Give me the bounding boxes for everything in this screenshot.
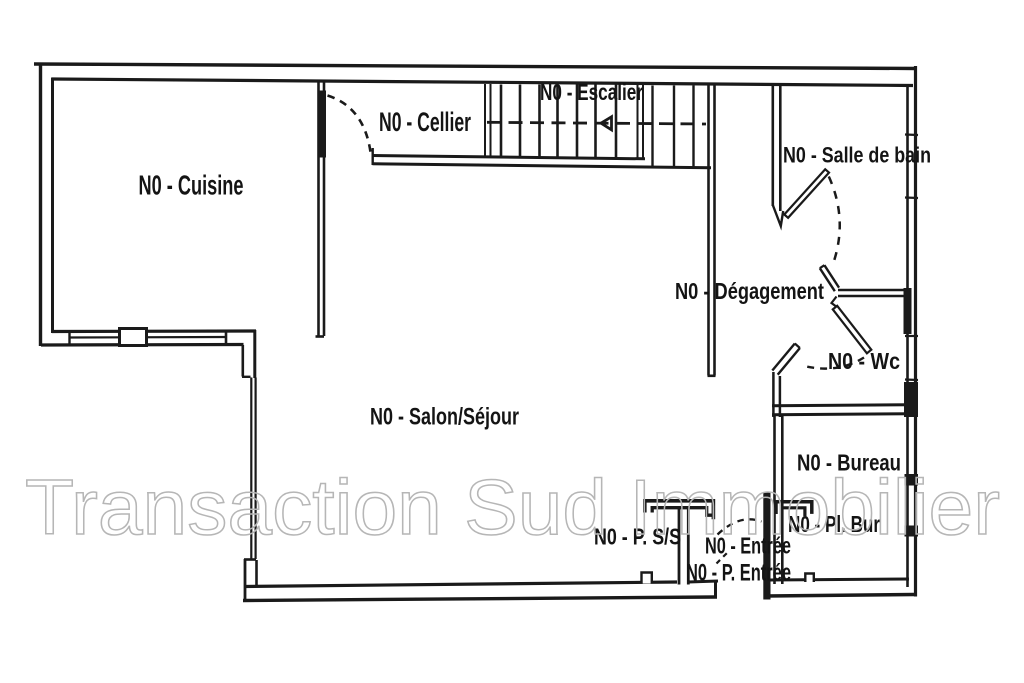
svg-text:N0 - Cellier: N0 - Cellier	[379, 107, 471, 137]
svg-text:N0 - Cuisine: N0 - Cuisine	[139, 170, 244, 201]
svg-text:N0 - Dégagement: N0 - Dégagement	[675, 278, 824, 304]
svg-text:N0 - Salle de bain: N0 - Salle de bain	[783, 143, 931, 168]
svg-text:N0 - Wc: N0 - Wc	[828, 348, 900, 374]
svg-text:N0 - Salon/Séjour: N0 - Salon/Séjour	[370, 404, 519, 431]
svg-text:N0 - P. Entrée: N0 - P. Entrée	[686, 560, 791, 587]
svg-text:N0 - Escalier: N0 - Escalier	[540, 79, 643, 105]
svg-text:Transaction Sud Immobilier: Transaction Sud Immobilier	[25, 463, 1000, 551]
